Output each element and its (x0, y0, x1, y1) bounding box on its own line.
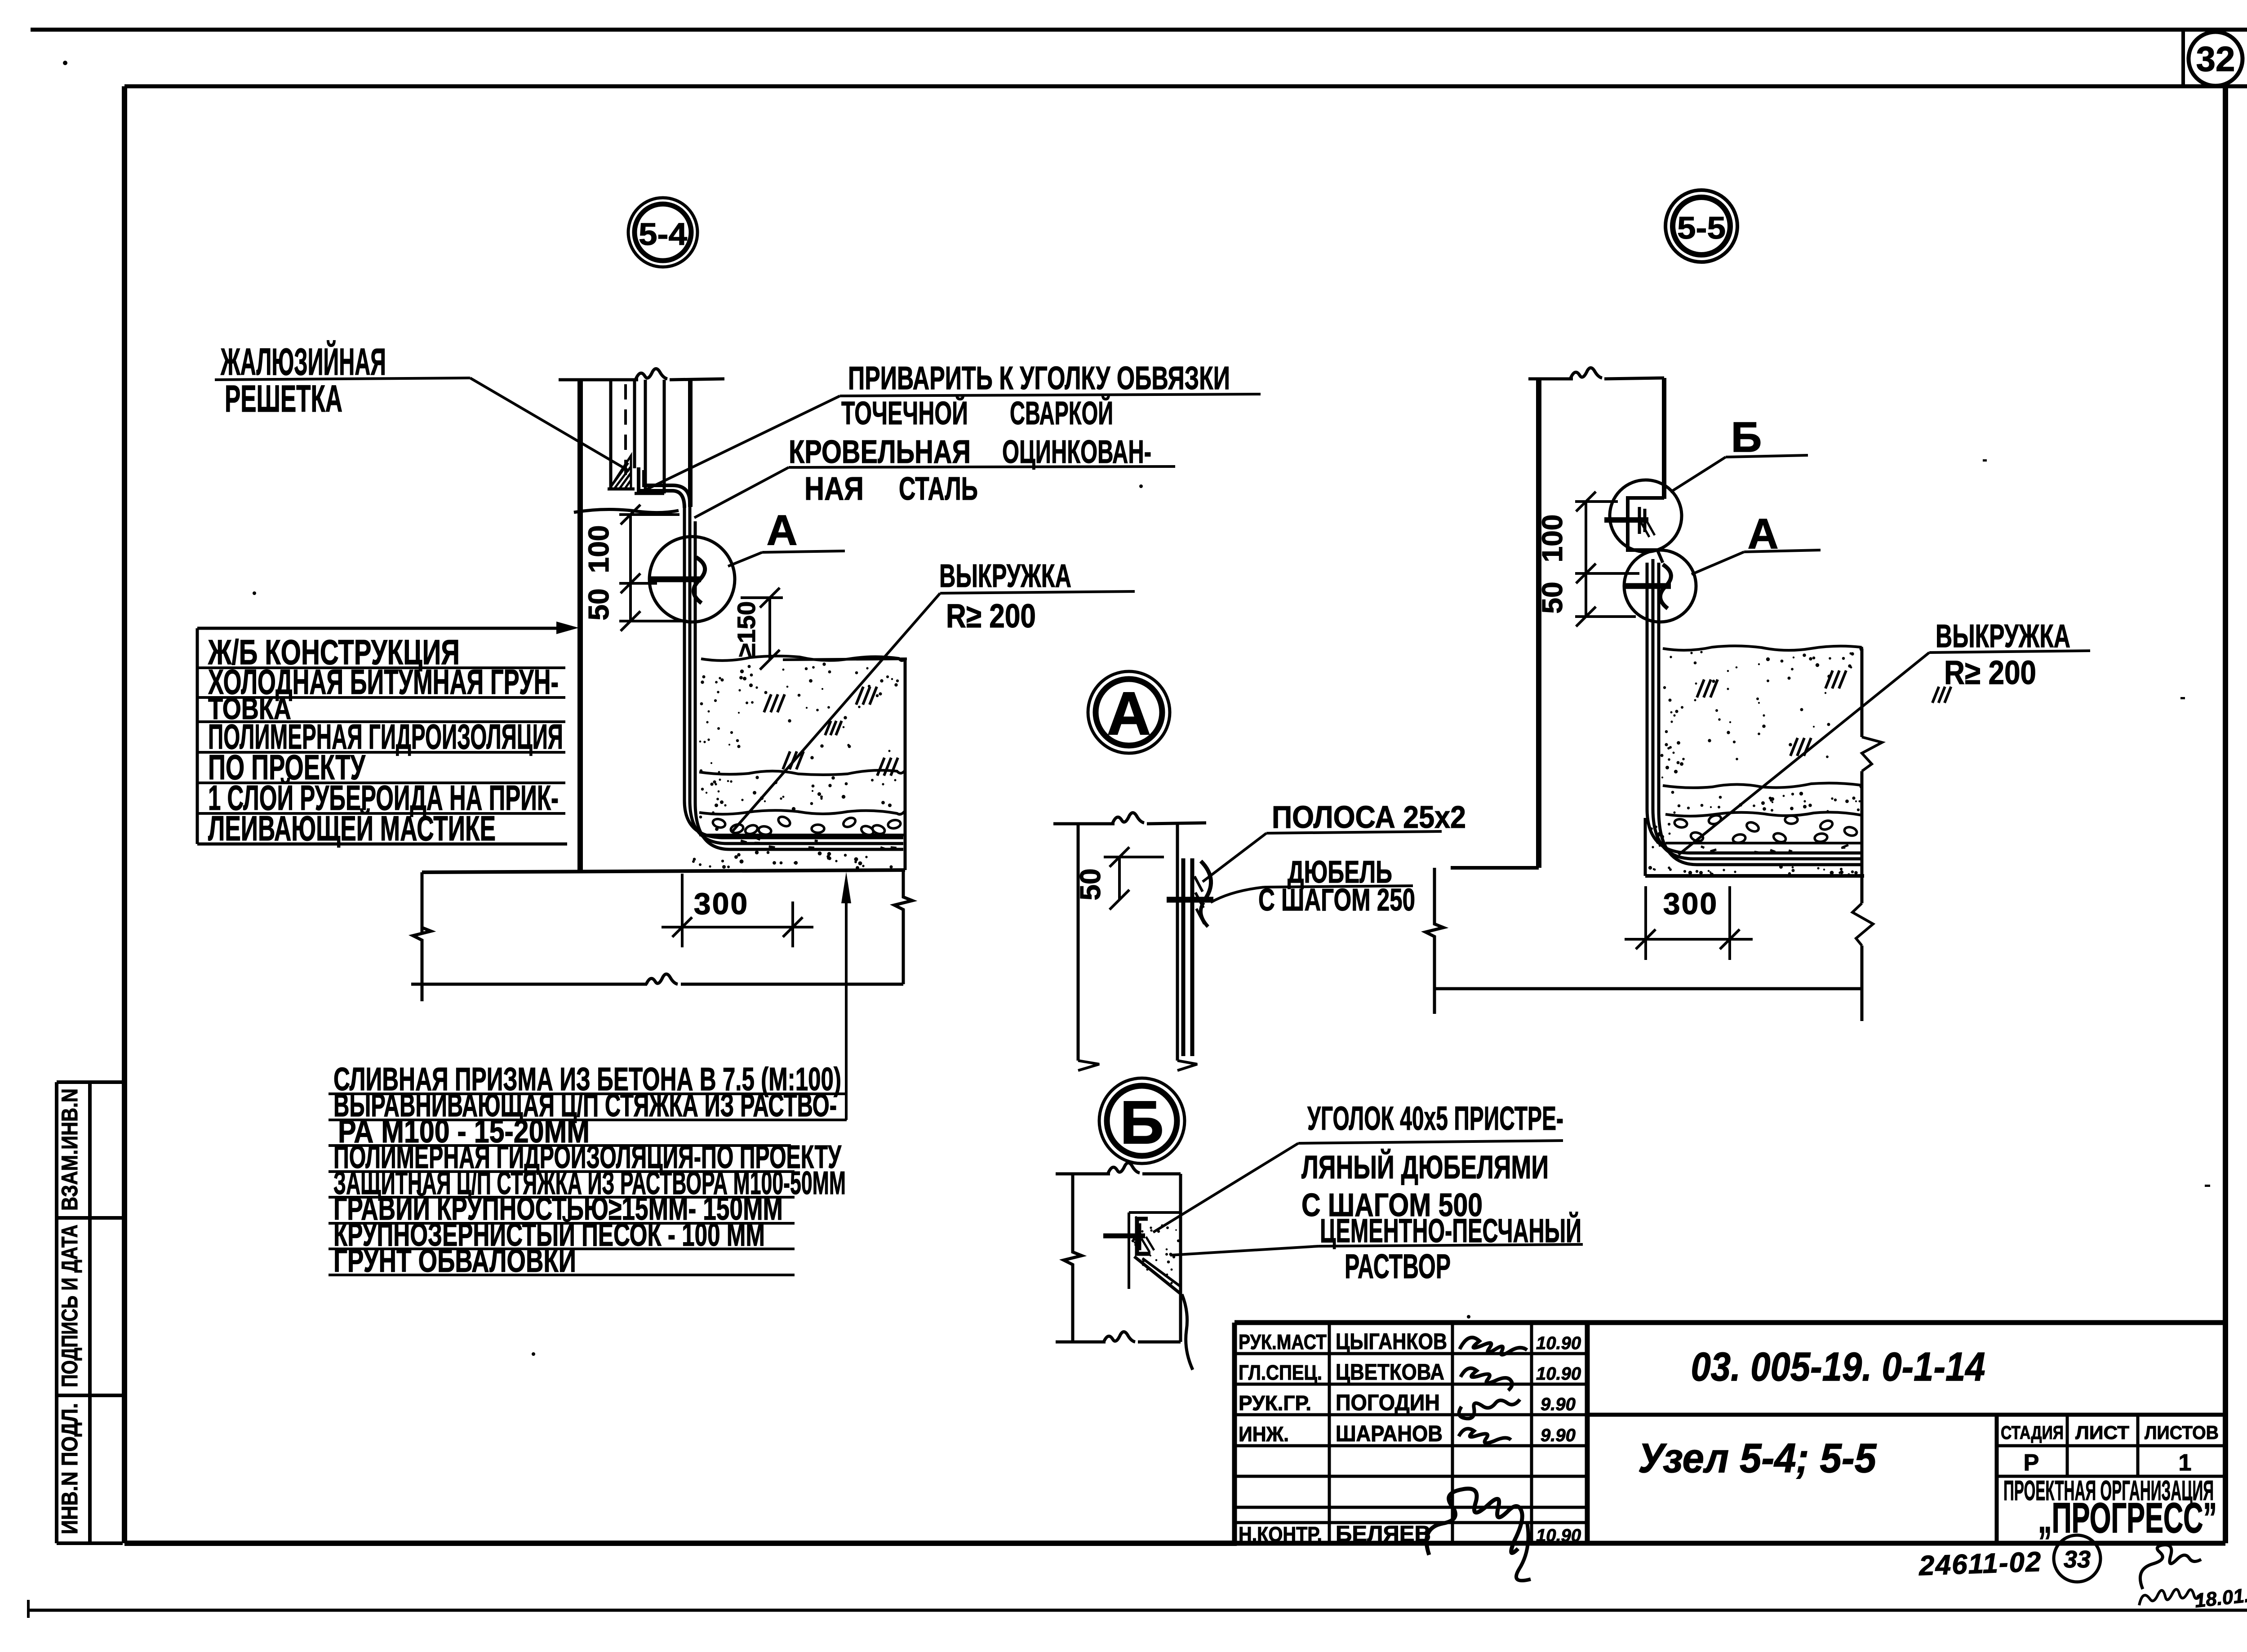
svg-text:РАСТВОР: РАСТВОР (1345, 1248, 1451, 1286)
svg-text:1: 1 (2179, 1450, 2192, 1476)
svg-text:300: 300 (694, 887, 749, 921)
svg-text:ИНВ.N ПОДЛ.: ИНВ.N ПОДЛ. (57, 1403, 82, 1534)
svg-text:50: 50 (582, 588, 615, 620)
svg-text:НАЯ: НАЯ (804, 471, 864, 507)
svg-text:100: 100 (1536, 515, 1568, 563)
svg-text:ШАРАНОВ: ШАРАНОВ (1336, 1421, 1443, 1446)
svg-text:СТАДИЯ: СТАДИЯ (2001, 1422, 2064, 1443)
svg-text:9.90: 9.90 (1541, 1394, 1576, 1414)
svg-text:РУК.МАСТ: РУК.МАСТ (1239, 1330, 1327, 1354)
svg-text:32: 32 (2196, 39, 2235, 79)
svg-text:ЦЫГАНКОВ: ЦЫГАНКОВ (1336, 1329, 1447, 1354)
svg-text:5-4: 5-4 (639, 217, 687, 252)
svg-text:ТОЧЕЧНОЙ: ТОЧЕЧНОЙ (841, 395, 968, 431)
svg-text:ОЦИНКОВАН-: ОЦИНКОВАН- (1002, 434, 1151, 470)
svg-text:ПРИВАРИТЬ К УГОЛКУ ОБВЯЗКИ: ПРИВАРИТЬ К УГОЛКУ ОБВЯЗКИ (848, 360, 1230, 396)
svg-text:СВАРКОЙ: СВАРКОЙ (1010, 395, 1113, 431)
svg-text:Б: Б (1120, 1088, 1163, 1156)
svg-text:9.90: 9.90 (1541, 1426, 1576, 1445)
svg-text:ГЛ.СПЕЦ.: ГЛ.СПЕЦ. (1239, 1361, 1322, 1384)
svg-text:ЛИСТОВ: ЛИСТОВ (2145, 1422, 2219, 1443)
svg-text:10.90: 10.90 (1536, 1526, 1581, 1545)
svg-text:ВЗАМ.ИНВ.N: ВЗАМ.ИНВ.N (57, 1088, 82, 1211)
svg-text:ВЫКРУЖКА: ВЫКРУЖКА (939, 558, 1071, 594)
svg-text:РУК.ГР.: РУК.ГР. (1239, 1391, 1311, 1415)
svg-text:ПОЛОСА 25х2: ПОЛОСА 25х2 (1272, 799, 1466, 835)
svg-text:ЦВЕТКОВА: ЦВЕТКОВА (1336, 1359, 1444, 1385)
svg-text:Р: Р (2024, 1450, 2039, 1476)
svg-text:5-5: 5-5 (1677, 210, 1726, 245)
svg-text:УГОЛОК 40х5 ПРИСТРЕ-: УГОЛОК 40х5 ПРИСТРЕ- (1307, 1100, 1563, 1137)
svg-text:ЖАЛЮЗИЙНАЯ: ЖАЛЮЗИЙНАЯ (220, 341, 386, 383)
svg-text:≥150: ≥150 (732, 601, 760, 657)
svg-text:33: 33 (2064, 1546, 2091, 1573)
svg-text:ИНЖ.: ИНЖ. (1239, 1422, 1289, 1446)
svg-text:03. 005-19. 0-1-14: 03. 005-19. 0-1-14 (1691, 1345, 1985, 1390)
svg-text:БЕЛЯЕВ: БЕЛЯЕВ (1336, 1521, 1431, 1546)
svg-text:ЛИСТ: ЛИСТ (2075, 1422, 2129, 1443)
svg-text:Б: Б (1731, 413, 1762, 461)
svg-text:„ПРОГРЕСС”: „ПРОГРЕСС” (2038, 1494, 2217, 1542)
svg-text:50: 50 (1536, 582, 1568, 613)
svg-text:КРОВЕЛЬНАЯ: КРОВЕЛЬНАЯ (789, 434, 971, 470)
svg-text:ВЫКРУЖКА: ВЫКРУЖКА (1936, 618, 2070, 654)
svg-text:10.90: 10.90 (1536, 1364, 1581, 1384)
svg-text:300: 300 (1663, 887, 1718, 921)
svg-text:100: 100 (582, 525, 615, 573)
svg-text:24611-02: 24611-02 (1918, 1546, 2043, 1582)
svg-text:50: 50 (1074, 868, 1106, 900)
svg-text:R≥ 200: R≥ 200 (946, 597, 1036, 635)
svg-text:А: А (1107, 679, 1151, 747)
svg-text:ЛЕИВАЮЩЕЙ МАСТИКЕ: ЛЕИВАЮЩЕЙ МАСТИКЕ (208, 808, 496, 848)
svg-text:Узел 5-4; 5-5: Узел 5-4; 5-5 (1638, 1435, 1877, 1481)
svg-text:СТАЛЬ: СТАЛЬ (899, 471, 978, 507)
svg-text:Н.КОНТР.: Н.КОНТР. (1239, 1523, 1322, 1546)
svg-text:ПОГОДИН: ПОГОДИН (1336, 1390, 1440, 1415)
svg-text:РЕШЕТКА: РЕШЕТКА (225, 377, 342, 420)
svg-text:ПОДПИСЬ И ДАТА: ПОДПИСЬ И ДАТА (57, 1225, 82, 1387)
svg-text:10.90: 10.90 (1536, 1333, 1581, 1353)
svg-text:R≥ 200: R≥ 200 (1944, 654, 2036, 691)
svg-text:ЛЯНЫЙ ДЮБЕЛЯМИ: ЛЯНЫЙ ДЮБЕЛЯМИ (1301, 1149, 1549, 1186)
svg-text:А: А (767, 506, 798, 554)
svg-text:С ШАГОМ 250: С ШАГОМ 250 (1258, 882, 1415, 917)
